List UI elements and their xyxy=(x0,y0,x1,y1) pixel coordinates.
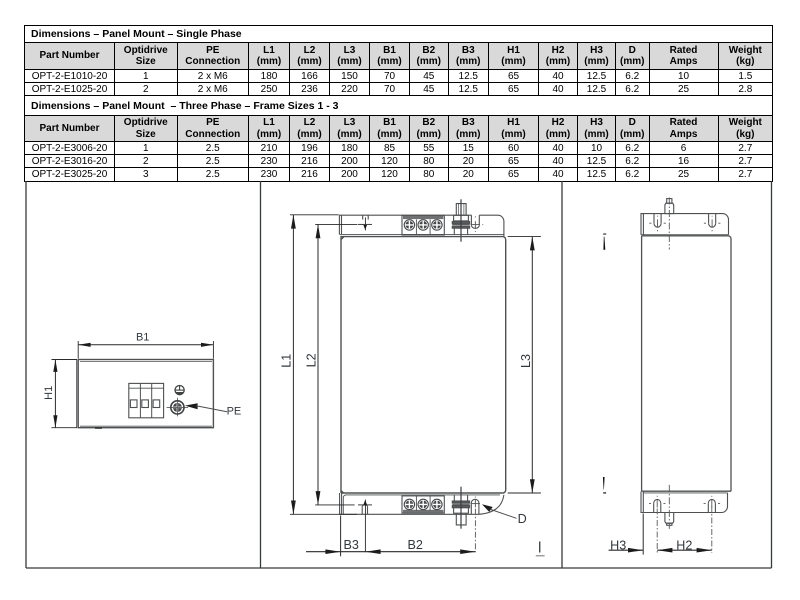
svg-text:D: D xyxy=(518,512,527,526)
svg-text:L1: L1 xyxy=(280,354,294,368)
svg-text:L2: L2 xyxy=(304,353,318,367)
svg-text:H3: H3 xyxy=(610,538,626,552)
svg-text:L3: L3 xyxy=(519,354,533,368)
svg-text:PE: PE xyxy=(227,406,242,418)
svg-text:H1: H1 xyxy=(43,386,55,400)
svg-text:B1: B1 xyxy=(136,331,149,343)
svg-text:B2: B2 xyxy=(407,538,422,552)
svg-text:B3: B3 xyxy=(343,538,358,552)
svg-text:H2: H2 xyxy=(676,538,692,552)
